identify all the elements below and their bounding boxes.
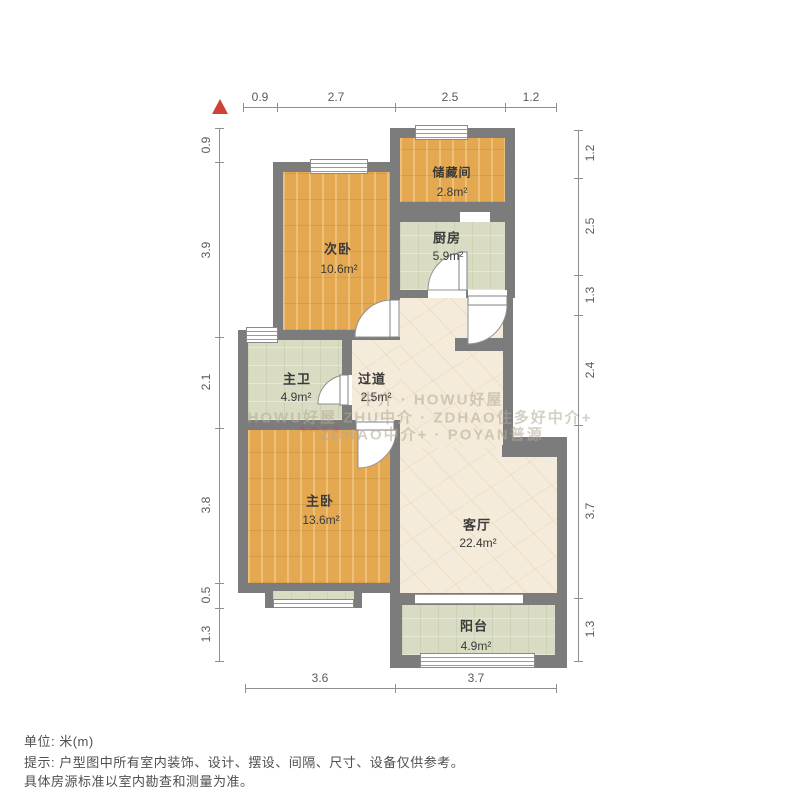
dim-line-bottom <box>245 688 557 689</box>
bathroom-door-opening <box>342 375 352 405</box>
dim-tick <box>277 103 278 112</box>
bay-window-icon <box>273 599 354 608</box>
room-master-label: 主卧 <box>306 491 334 510</box>
dim-tick <box>215 162 224 163</box>
dim-tick <box>574 598 583 599</box>
room-bedroom2-area: 10.6m² <box>320 262 357 276</box>
dim-label-right: 1.3 <box>583 621 597 638</box>
balcony-window-icon <box>420 653 535 668</box>
room-living-label: 客厅 <box>463 515 491 534</box>
room-kitchen-label: 厨房 <box>433 228 461 247</box>
dim-label-left: 3.9 <box>199 242 213 259</box>
dim-tick <box>574 425 583 426</box>
dim-tick <box>574 130 583 131</box>
watermark-line: ZDHAO中介+ · POYAN普源 <box>320 424 543 445</box>
dim-label-left: 2.1 <box>199 374 213 391</box>
room-storage-area: 2.8m² <box>437 185 468 199</box>
dim-label-right: 3.7 <box>583 503 597 520</box>
dim-label-right: 2.4 <box>583 362 597 379</box>
floorplan-page: 中介 · HOWU好屋 HOWU好屋 ZHU中介 · ZDHAO住多好中介+ Z… <box>0 0 800 800</box>
room-hallway-label: 过道 <box>358 369 386 388</box>
dim-label-top: 2.7 <box>328 90 345 104</box>
dim-label-left: 0.9 <box>199 137 213 154</box>
dim-tick <box>574 661 583 662</box>
dim-tick <box>574 315 583 316</box>
dim-label-bottom: 3.7 <box>468 671 485 685</box>
unit-note: 单位: 米(m) <box>24 731 94 750</box>
dim-tick <box>215 661 224 662</box>
dim-label-right: 2.5 <box>583 218 597 235</box>
room-balcony-label: 阳台 <box>460 616 488 635</box>
dim-label-left: 1.3 <box>199 626 213 643</box>
room-bedroom2-label: 次卧 <box>324 239 352 258</box>
dim-tick <box>395 684 396 693</box>
dim-label-top: 2.5 <box>442 90 459 104</box>
disclaimer-line1: 提示: 户型图中所有室内装饰、设计、摆设、间隔、尺寸、设备仅供参考。 <box>24 752 464 771</box>
bedroom2-window-icon <box>310 159 368 174</box>
dim-tick <box>215 608 224 609</box>
dim-tick <box>215 337 224 338</box>
room-kitchen-area: 5.9m² <box>433 249 464 263</box>
wall <box>502 445 567 457</box>
dim-tick <box>574 178 583 179</box>
dim-tick <box>556 103 557 112</box>
dim-label-right: 1.2 <box>583 145 597 162</box>
dim-label-left: 3.8 <box>199 497 213 514</box>
bedroom2-door-opening <box>390 300 400 337</box>
room-bathroom-label: 主卫 <box>283 369 311 388</box>
dim-label-bottom: 3.6 <box>312 671 329 685</box>
room-balcony-area: 4.9m² <box>461 639 492 653</box>
room-storage-label: 储藏间 <box>432 164 471 181</box>
storage-window-icon <box>415 125 468 140</box>
disclaimer-line2: 具体房源标准以室内勘查和测量为准。 <box>24 771 254 790</box>
north-arrow-icon <box>212 99 228 114</box>
dim-label-right: 1.3 <box>583 287 597 304</box>
room-master-area: 13.6m² <box>302 513 339 527</box>
dim-tick <box>215 128 224 129</box>
dim-tick <box>574 275 583 276</box>
dim-line-right <box>578 130 579 662</box>
dim-line-top <box>243 107 557 108</box>
room-living-area: 22.4m² <box>459 536 496 550</box>
entry-door-opening <box>468 290 507 298</box>
dim-label-top: 0.9 <box>252 90 269 104</box>
dim-line-left <box>219 128 220 662</box>
dim-tick <box>395 103 396 112</box>
room-hallway-area: 2.5m² <box>361 390 392 404</box>
room-bathroom-area: 4.9m² <box>281 390 312 404</box>
kitchen-door-opening <box>428 290 466 298</box>
bathroom-window-icon <box>246 327 278 343</box>
dim-tick <box>243 103 244 112</box>
dim-tick <box>245 684 246 693</box>
dim-tick <box>215 583 224 584</box>
balcony-opening <box>415 594 523 604</box>
dim-tick <box>505 103 506 112</box>
dim-label-left: 0.5 <box>199 587 213 604</box>
dim-label-top: 1.2 <box>523 90 540 104</box>
storage-opening <box>460 212 490 222</box>
watermark-stars: ＊＊＊＊ <box>298 421 342 436</box>
dim-tick <box>215 428 224 429</box>
dim-tick <box>556 684 557 693</box>
